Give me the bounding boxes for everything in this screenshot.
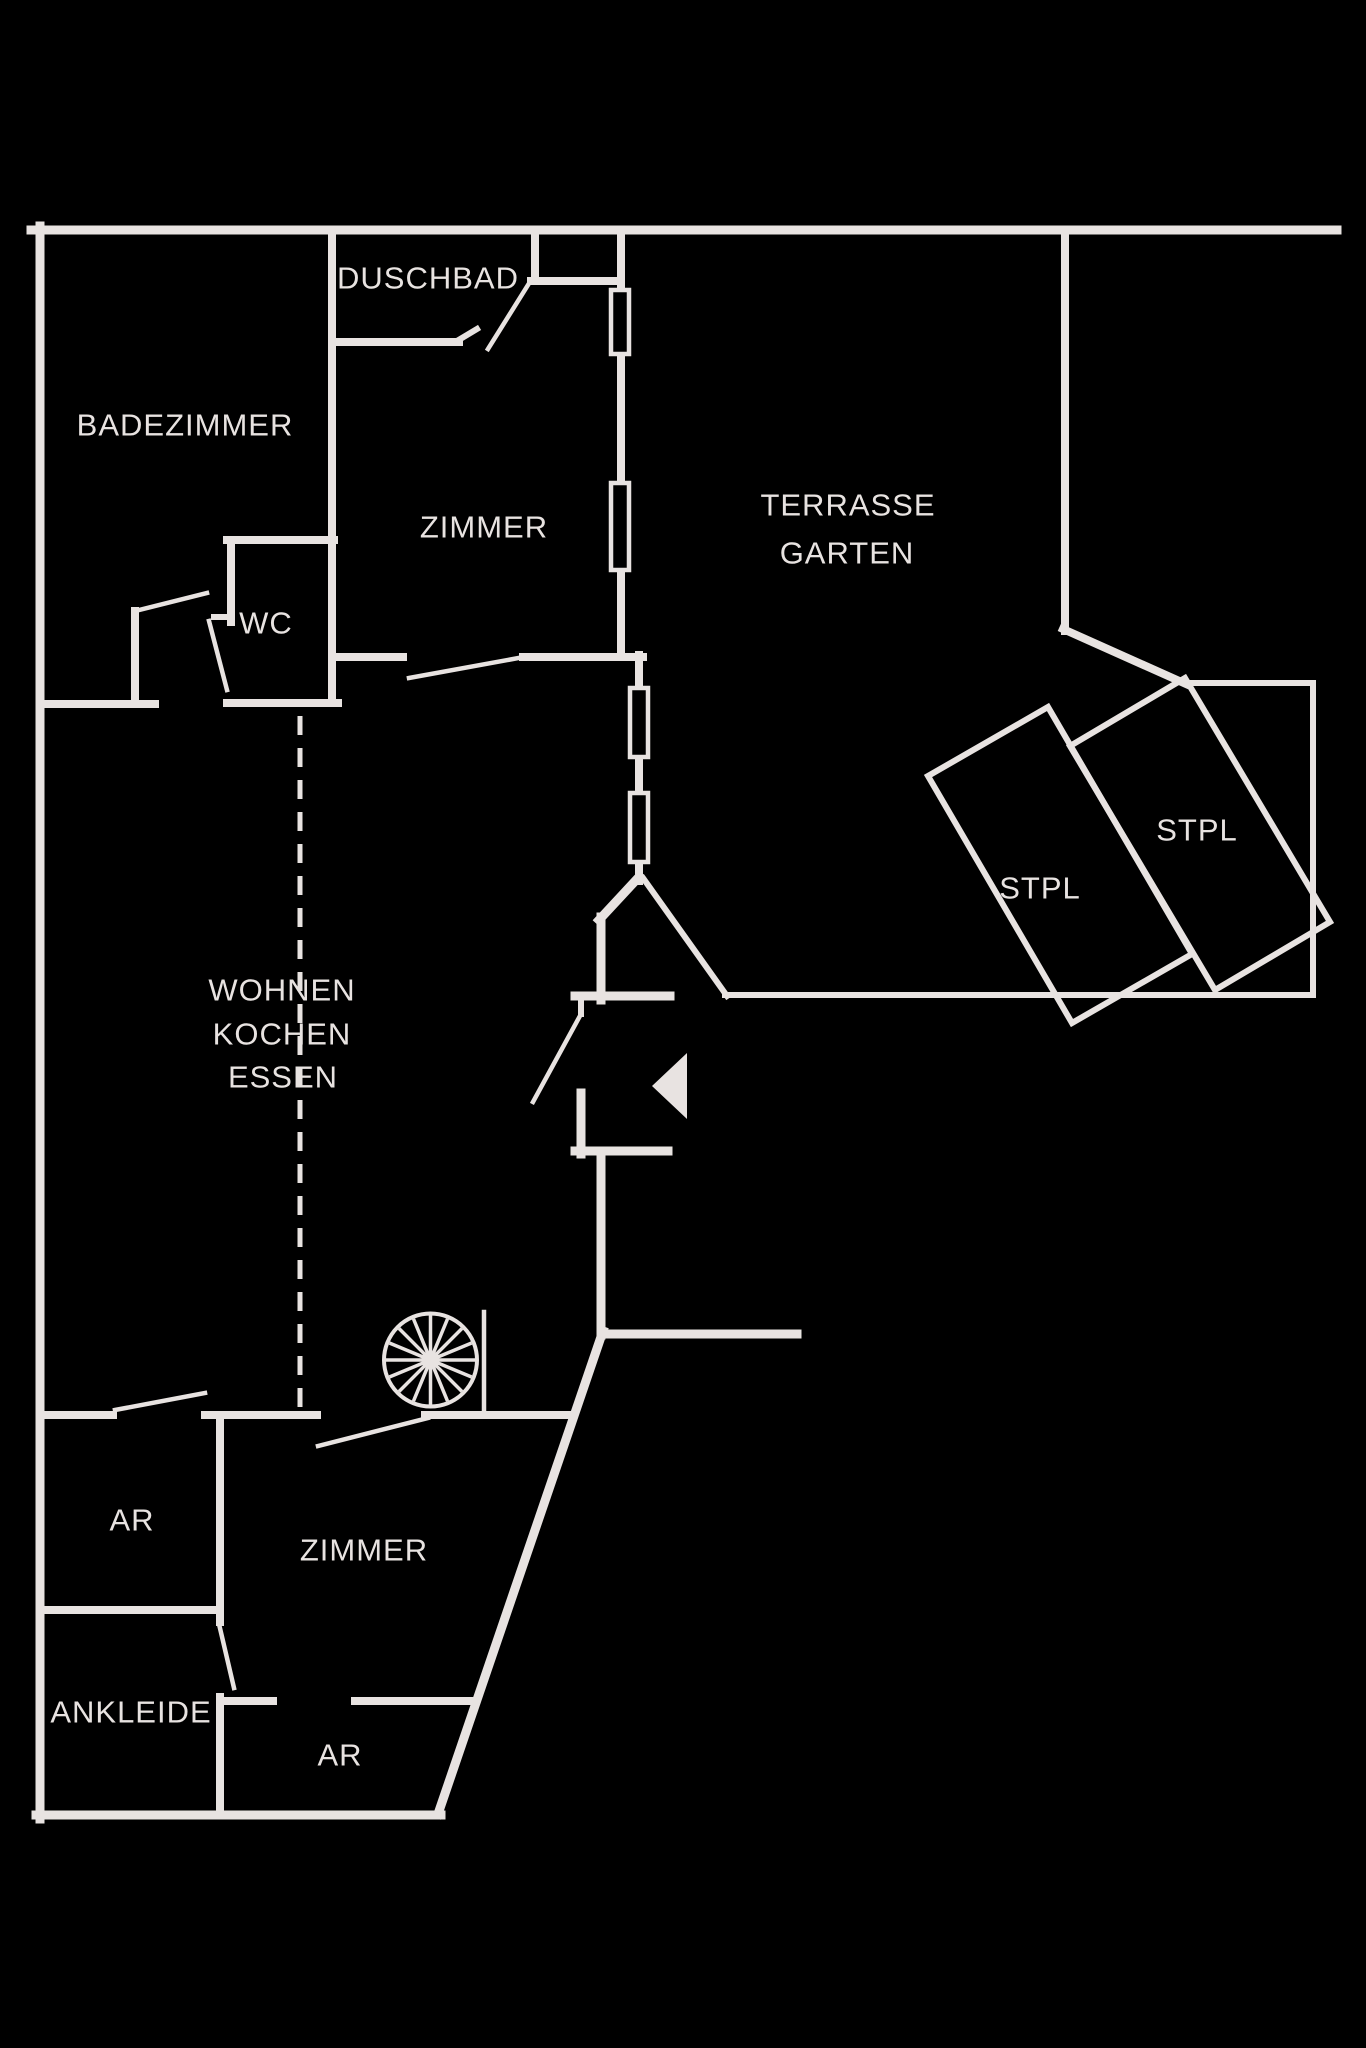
label-terrasse: TERRASSE: [760, 488, 935, 523]
label-ankleide: ANKLEIDE: [50, 1695, 211, 1730]
label-ar-bottom: AR: [317, 1738, 362, 1773]
label-zimmer-top: ZIMMER: [420, 510, 548, 545]
label-wohnen: WOHNEN: [208, 973, 355, 1008]
label-wc: WC: [239, 606, 293, 641]
label-duschbad: DUSCHBAD: [337, 261, 519, 296]
label-badezimmer: BADEZIMMER: [77, 408, 294, 443]
label-kochen: KOCHEN: [213, 1017, 352, 1052]
label-stpl-right: STPL: [1156, 813, 1238, 848]
window-2: [611, 483, 629, 570]
window-4: [630, 793, 648, 862]
label-stpl-left: STPL: [999, 871, 1081, 906]
label-essen: ESSEN: [228, 1060, 338, 1095]
label-garten: GARTEN: [780, 536, 915, 571]
window-3: [630, 688, 648, 757]
floor-plan-page: DUSCHBADBADEZIMMERZIMMERTERRASSEGARTENWC…: [0, 0, 1366, 2048]
background: [0, 0, 1366, 2048]
window-1: [611, 290, 629, 354]
label-ar-top: AR: [109, 1503, 154, 1538]
floor-plan-svg: DUSCHBADBADEZIMMERZIMMERTERRASSEGARTENWC…: [0, 0, 1366, 2048]
label-zimmer-bottom: ZIMMER: [300, 1533, 428, 1568]
